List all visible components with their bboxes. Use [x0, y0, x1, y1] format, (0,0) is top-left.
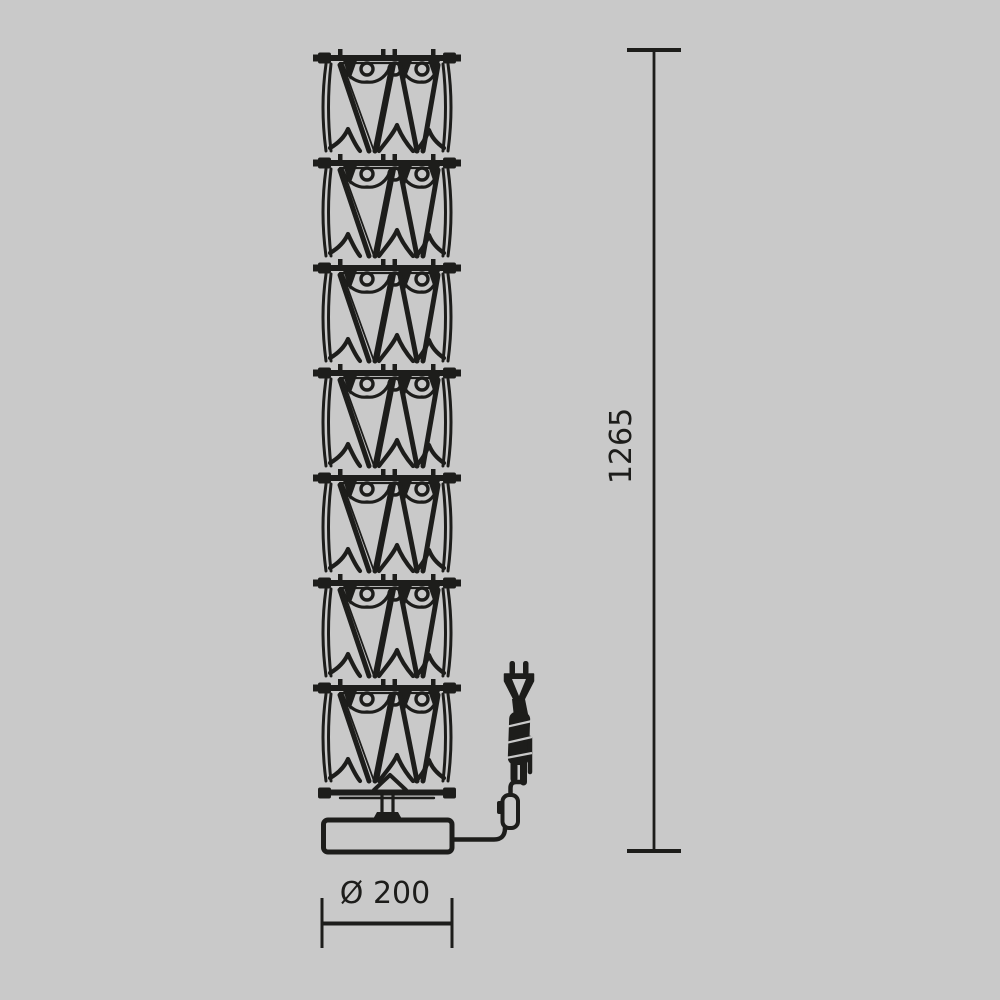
cord-switch [497, 795, 518, 828]
lamp-technical-drawing [0, 0, 1000, 1000]
lamp-base [324, 820, 453, 852]
lamp-column [313, 49, 461, 781]
cord-bundle [506, 699, 532, 782]
column-bottom-rail [318, 775, 456, 799]
diameter-dimension-label: Ø 200 [340, 879, 430, 909]
power-plug-icon [505, 661, 534, 700]
height-dimension-label: 1265 [607, 408, 637, 484]
drawing-canvas: 1265 Ø 200 [0, 0, 1000, 1000]
